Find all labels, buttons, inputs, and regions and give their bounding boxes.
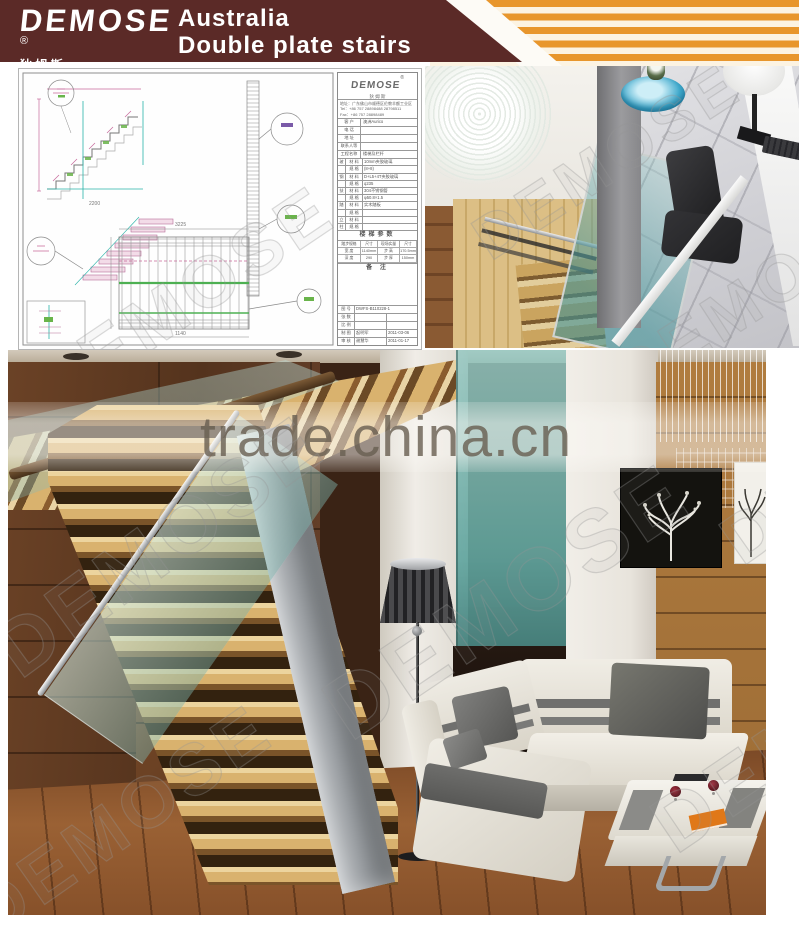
ceiling-light <box>63 353 89 360</box>
floor-lamp-shade <box>380 563 456 623</box>
material-row: 规 格q235 <box>338 180 417 187</box>
dim-3225: 3225 <box>175 222 186 228</box>
landing-glass-panel <box>456 350 570 648</box>
header-banner: DEMOSE® 狄 姆 斯 Australia Double plate sta… <box>0 0 799 66</box>
living-room-render-photo: trade.china.cn DEMOSE DEMOSE DEMOSE DEMO… <box>8 350 766 915</box>
brand-logo: DEMOSE® 狄 姆 斯 <box>20 6 168 66</box>
elevation-view <box>37 80 143 199</box>
black-tree-artwork <box>620 468 722 568</box>
scale-row: 比 例 <box>338 321 417 329</box>
dark-tray <box>673 774 710 781</box>
plan-view <box>111 229 249 337</box>
dim-1140: 1140 <box>175 331 186 337</box>
material-row: 钢材 料D+L5+4T夹胶玻璃 <box>338 173 417 180</box>
trade-watermark: trade.china.cn <box>200 404 572 470</box>
material-row: 立材 料 <box>338 216 417 223</box>
detail-box <box>27 301 85 343</box>
notes-title: 备 注 <box>338 263 417 273</box>
brand-logo-text: DEMOSE <box>18 6 174 36</box>
white-tree-graphic <box>621 469 721 567</box>
brand-logo-chinese: 狄 姆 斯 <box>20 56 152 66</box>
customer-row: 客 户澳洲Aurico <box>338 118 417 126</box>
material-row: 柱规 格 <box>338 223 417 230</box>
dim-2200: 2200 <box>89 201 100 207</box>
desk-lamp-stem <box>752 94 757 134</box>
material-row: 规 格 <box>338 209 417 216</box>
cad-drawing-panel: 2200 3225 1140 DEMOSE® 狄 姆 斯 地址：广东佛山市顺德区… <box>18 68 422 350</box>
wine-glass <box>670 786 681 797</box>
stair-technical-drawing: 2200 3225 1140 <box>19 69 337 349</box>
material-row: 规 格(8+8) <box>338 165 417 172</box>
address-row: 地 址 <box>338 134 417 142</box>
material-row: 玻材 料10mm夹胶玻璃 <box>338 158 417 165</box>
coffee-table <box>608 780 766 892</box>
stairwell-render-photo: DEMOSE DEMOSE <box>425 66 799 348</box>
ceiling-light <box>276 351 302 358</box>
banner-title-line1: Australia <box>178 5 412 32</box>
stair-params-table: 踏步规格尺寸现场实量尺寸 宽 度1140mm步 高170.5mm 深 度290步… <box>338 240 417 263</box>
dwg-number-row: 图 号DWFS-B110228-1 <box>338 305 417 313</box>
stair-params-title: 楼梯参数 <box>338 230 417 240</box>
dark-tree-graphic <box>735 463 766 563</box>
contact-row: 联系人等 <box>338 142 417 150</box>
blue-glass-table <box>621 76 685 112</box>
trade-watermark-band: trade.china.cn <box>8 402 766 472</box>
floor-lamp-rim <box>390 558 446 570</box>
wood-wall-strip <box>425 206 455 348</box>
floor-lamp-knob <box>412 626 422 636</box>
drawn-by-row: 制 图起明军2011-03-06 <box>338 329 417 337</box>
phone-row: 电 话 <box>338 126 417 134</box>
chrome-sled-leg <box>654 856 727 891</box>
cad-title-block: DEMOSE® 狄 姆 斯 地址：广东佛山市顺德区伦教羊额工业区 Tel：+86… <box>337 72 418 346</box>
sheet-row: 张 数 <box>338 313 417 321</box>
notes-area <box>338 273 417 305</box>
company-address: 地址：广东佛山市顺德区伦教羊额工业区 Tel：+86 757 28898488 … <box>338 99 417 118</box>
material-row: 踏材 料实木踏板 <box>338 201 417 208</box>
checked-by-row: 审 核谢慧华2011-01-17 <box>338 337 417 345</box>
material-row: 规 格φ50.8×1.5 <box>338 194 417 201</box>
project-row: 工程名称楼梯及栏杆 <box>338 150 417 158</box>
flower-vase <box>647 66 665 80</box>
wine-glass <box>708 780 719 791</box>
product-image: DEMOSE® 狄 姆 斯 Australia Double plate sta… <box>0 0 799 926</box>
white-tree-artwork <box>734 462 766 564</box>
banner-title: Australia Double plate stairs <box>178 5 412 59</box>
banner-title-line2: Double plate stairs <box>178 32 412 59</box>
material-row: 扶材 料304不锈钢管 <box>338 187 417 194</box>
gray-cushion-large <box>608 662 710 739</box>
title-block-logo: DEMOSE® 狄 姆 斯 <box>338 73 417 99</box>
